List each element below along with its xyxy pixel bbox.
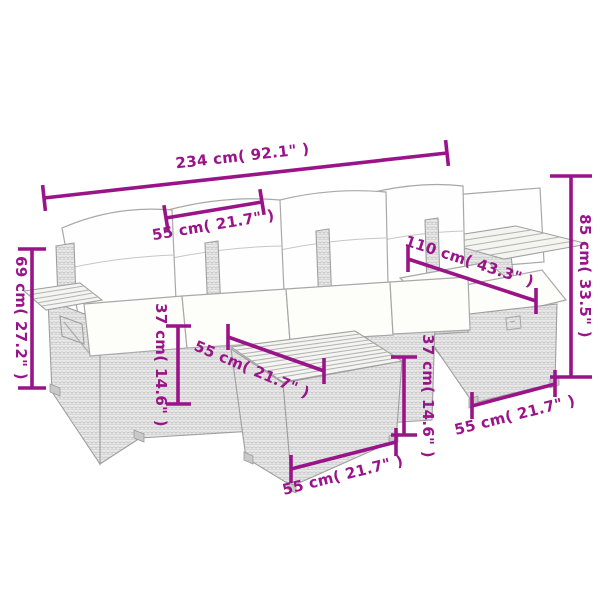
overall-width-label: 234 cm( 92.1" ) bbox=[175, 140, 311, 173]
overall-height-label: 85 cm( 33.5" ) bbox=[576, 214, 594, 338]
diagram-canvas: 234 cm( 92.1" ) 55 cm( 21.7" ) 85 cm( 33… bbox=[0, 0, 600, 600]
furniture-dimension-diagram: 234 cm( 92.1" ) 55 cm( 21.7" ) 85 cm( 33… bbox=[0, 0, 600, 600]
back-pillow-3 bbox=[276, 191, 388, 295]
lounge-set-drawing bbox=[24, 185, 588, 493]
armrest-shelf-height-label: 69 cm( 27.2" ) bbox=[12, 256, 30, 380]
dimension-armrest-shelf-height: 69 cm( 27.2" ) bbox=[12, 249, 46, 388]
dimension-overall-height: 85 cm( 33.5" ) bbox=[550, 176, 594, 377]
seat-height-left-label: 37 cm( 14.6" ) bbox=[152, 303, 170, 427]
table-height-label: 37 cm( 14.6" ) bbox=[419, 334, 437, 458]
